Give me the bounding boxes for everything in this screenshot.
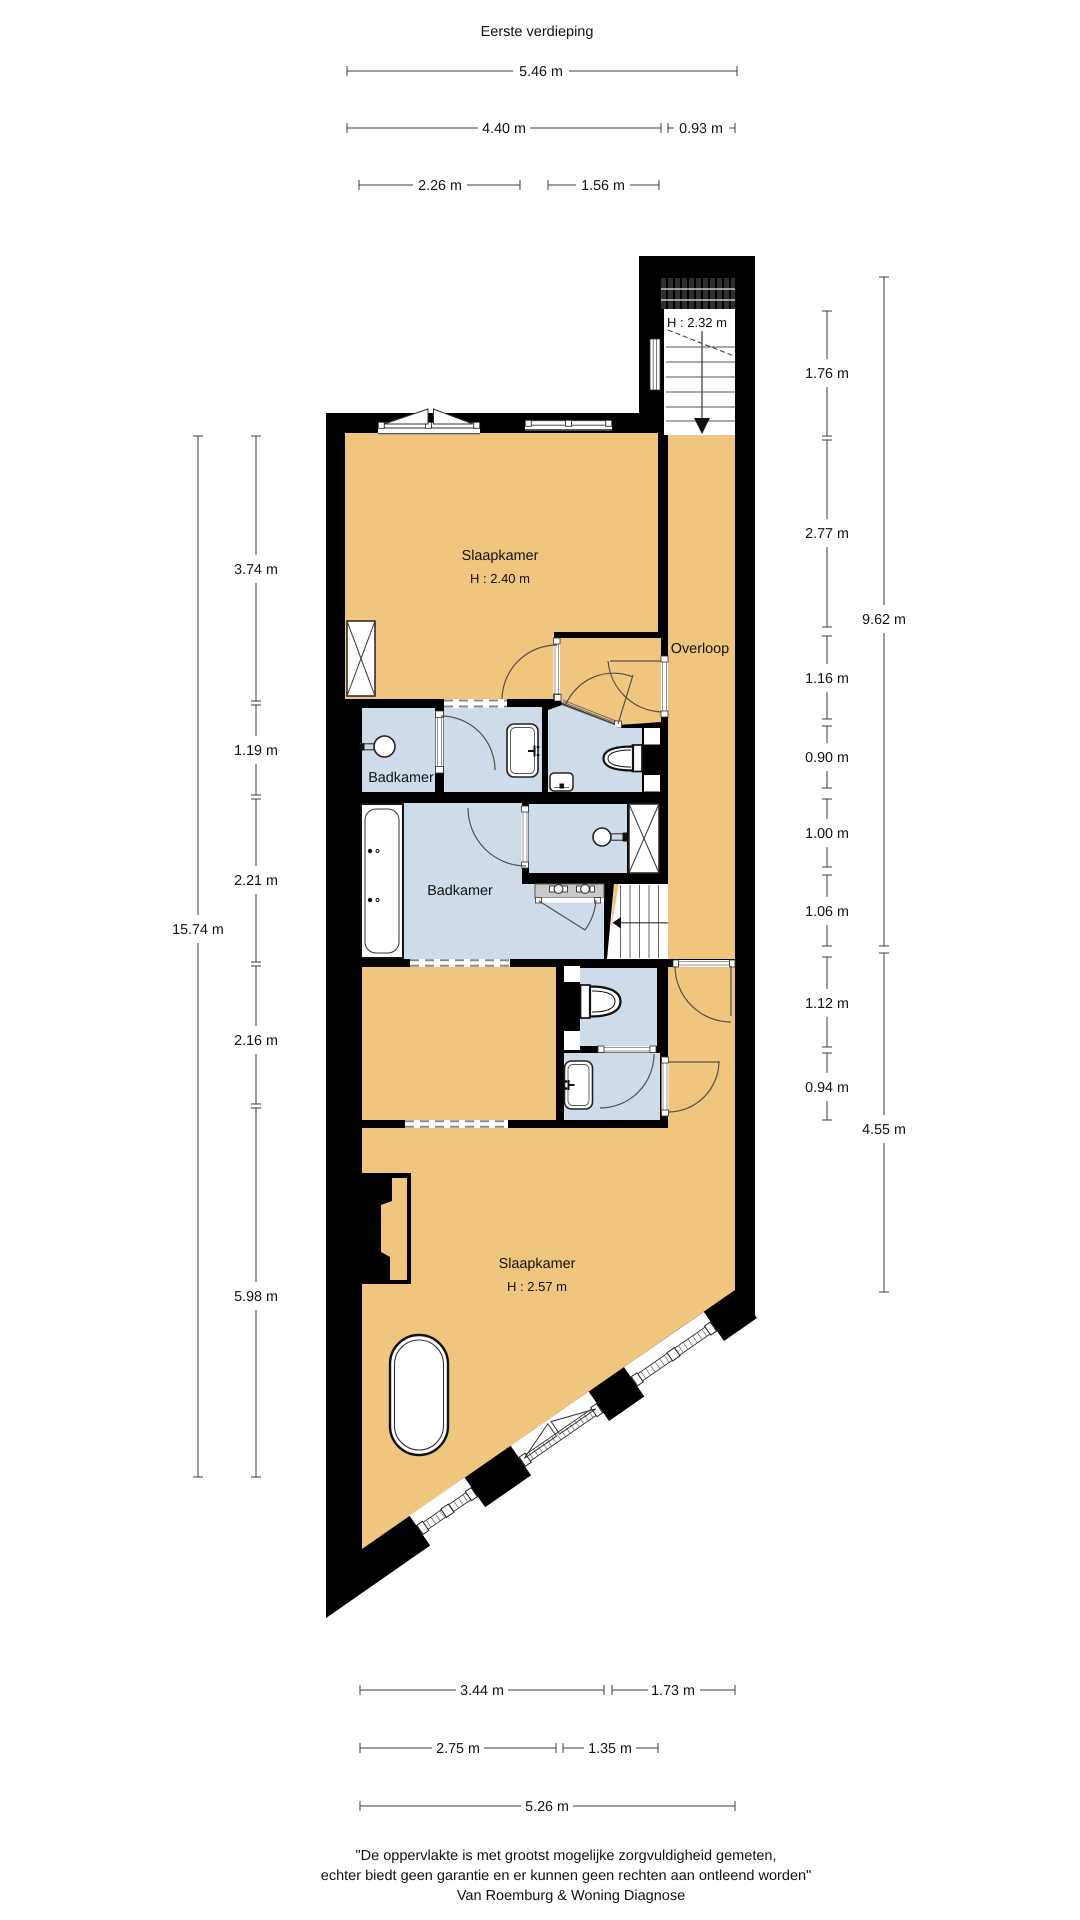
svg-text:3.44 m: 3.44 m [460, 1683, 504, 1699]
svg-text:1.16 m: 1.16 m [805, 671, 849, 687]
svg-text:1.35 m: 1.35 m [588, 1741, 632, 1757]
svg-text:0.94 m: 0.94 m [805, 1080, 849, 1096]
svg-text:1.73 m: 1.73 m [651, 1683, 695, 1699]
svg-text:1.19 m: 1.19 m [234, 743, 278, 759]
svg-text:1.76 m: 1.76 m [805, 366, 849, 382]
svg-text:Van Roemburg & Woning Diagnose: Van Roemburg & Woning Diagnose [457, 1888, 685, 1904]
svg-text:1.12 m: 1.12 m [805, 996, 849, 1012]
svg-text:5.26 m: 5.26 m [525, 1799, 569, 1815]
svg-text:2.77 m: 2.77 m [805, 526, 849, 542]
svg-text:4.55 m: 4.55 m [862, 1122, 906, 1138]
svg-text:H : 2.40 m: H : 2.40 m [470, 571, 530, 586]
svg-text:9.62 m: 9.62 m [862, 612, 906, 628]
svg-text:"De oppervlakte is met grootst: "De oppervlakte is met grootst mogelijke… [355, 1848, 776, 1864]
svg-text:2.75 m: 2.75 m [436, 1741, 480, 1757]
svg-text:5.46 m: 5.46 m [519, 64, 563, 80]
svg-text:2.21 m: 2.21 m [234, 873, 278, 889]
svg-text:Eerste verdieping: Eerste verdieping [481, 24, 594, 40]
svg-text:1.00 m: 1.00 m [805, 826, 849, 842]
svg-text:1.56 m: 1.56 m [581, 178, 625, 194]
svg-text:Badkamer: Badkamer [427, 883, 493, 899]
svg-text:1.06 m: 1.06 m [805, 904, 849, 920]
svg-text:3.74 m: 3.74 m [234, 562, 278, 578]
svg-text:H : 2.32 m: H : 2.32 m [667, 315, 727, 330]
svg-text:0.93 m: 0.93 m [679, 121, 723, 137]
svg-text:15.74 m: 15.74 m [172, 922, 224, 938]
svg-text:Overloop: Overloop [671, 641, 729, 657]
svg-text:Badkamer: Badkamer [368, 770, 434, 786]
svg-text:Slaapkamer: Slaapkamer [462, 548, 539, 564]
svg-text:2.16 m: 2.16 m [234, 1033, 278, 1049]
svg-text:5.98 m: 5.98 m [234, 1289, 278, 1305]
svg-text:echter biedt geen garantie en: echter biedt geen garantie en er kunnen … [321, 1868, 811, 1884]
svg-text:0.90 m: 0.90 m [805, 750, 849, 766]
svg-text:2.26 m: 2.26 m [418, 178, 462, 194]
svg-text:Slaapkamer: Slaapkamer [499, 1256, 576, 1272]
svg-text:4.40 m: 4.40 m [482, 121, 526, 137]
svg-text:H : 2.57 m: H : 2.57 m [507, 1279, 567, 1294]
